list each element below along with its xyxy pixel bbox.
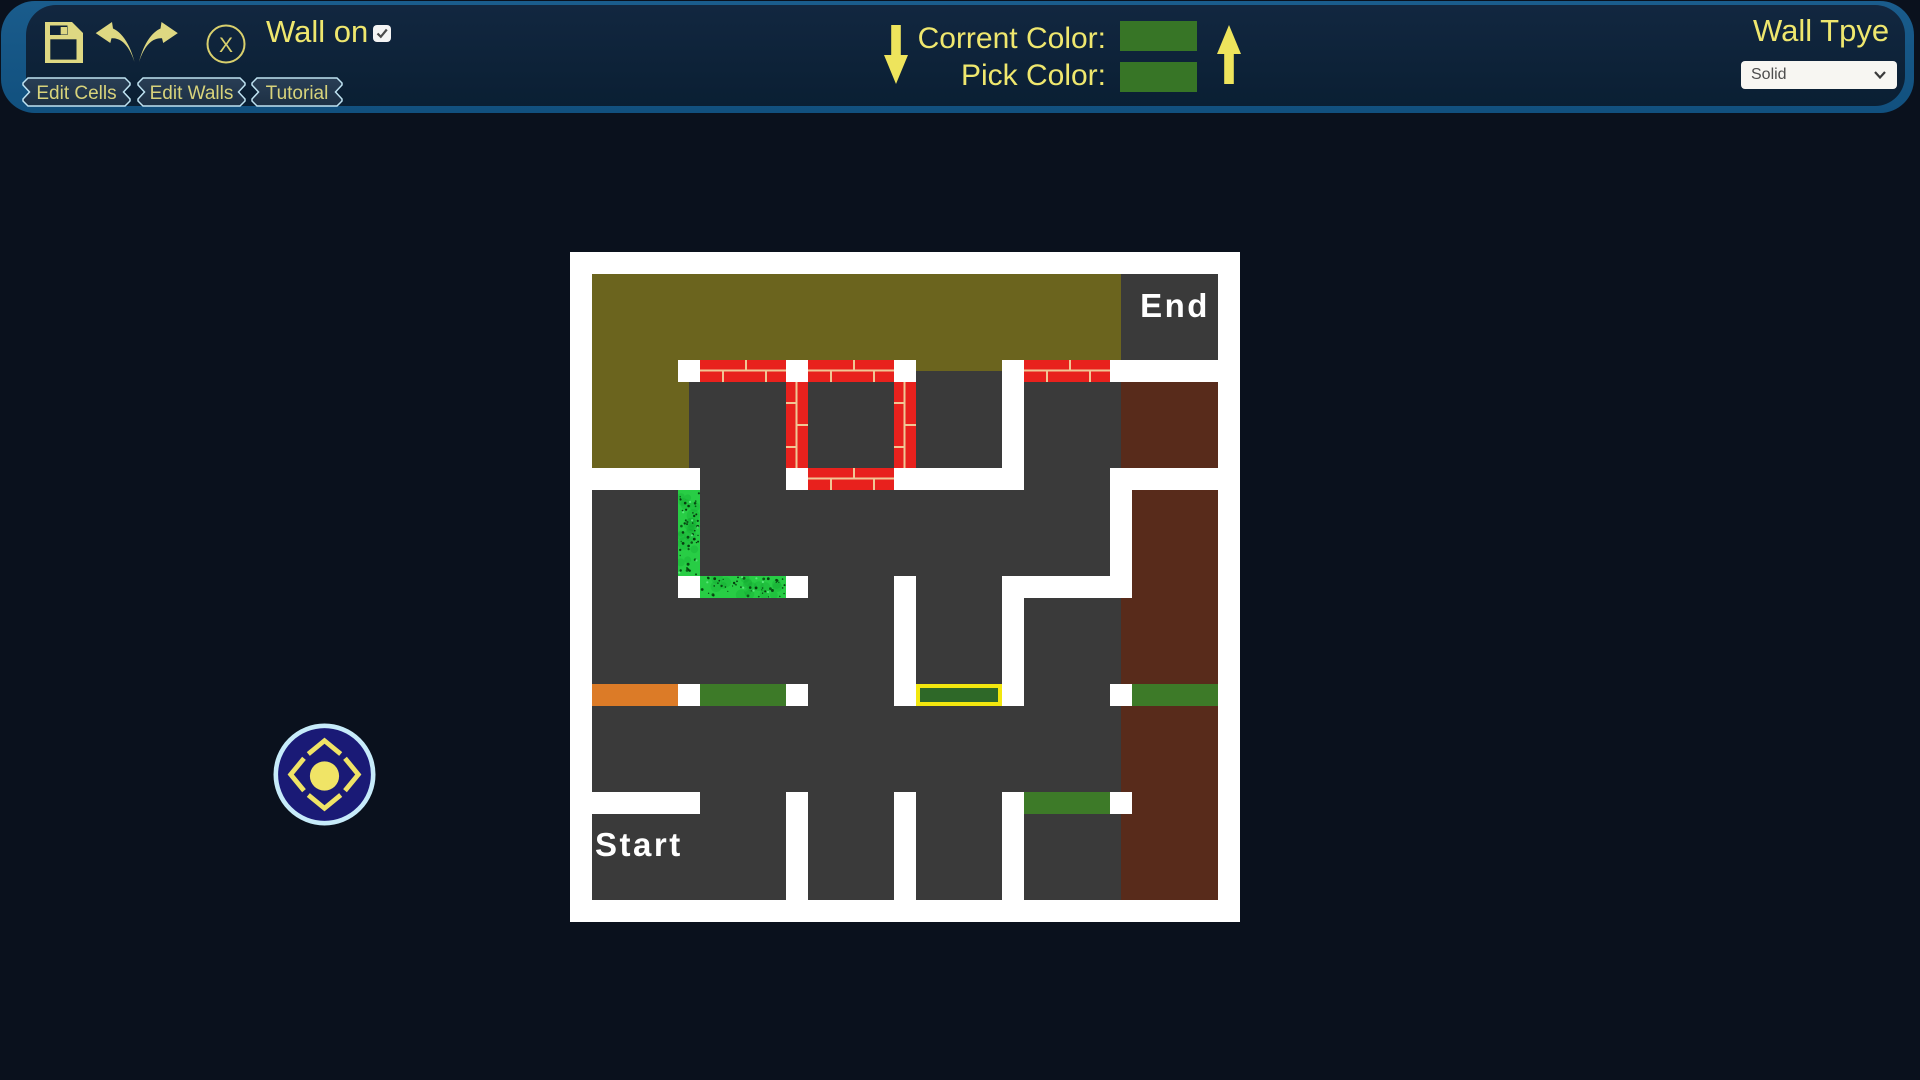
svg-text:Tutorial: Tutorial	[266, 83, 329, 104]
svg-text:X: X	[219, 34, 233, 57]
svg-text:Edit Walls: Edit Walls	[150, 83, 234, 104]
svg-text:Edit Cells: Edit Cells	[36, 83, 116, 104]
